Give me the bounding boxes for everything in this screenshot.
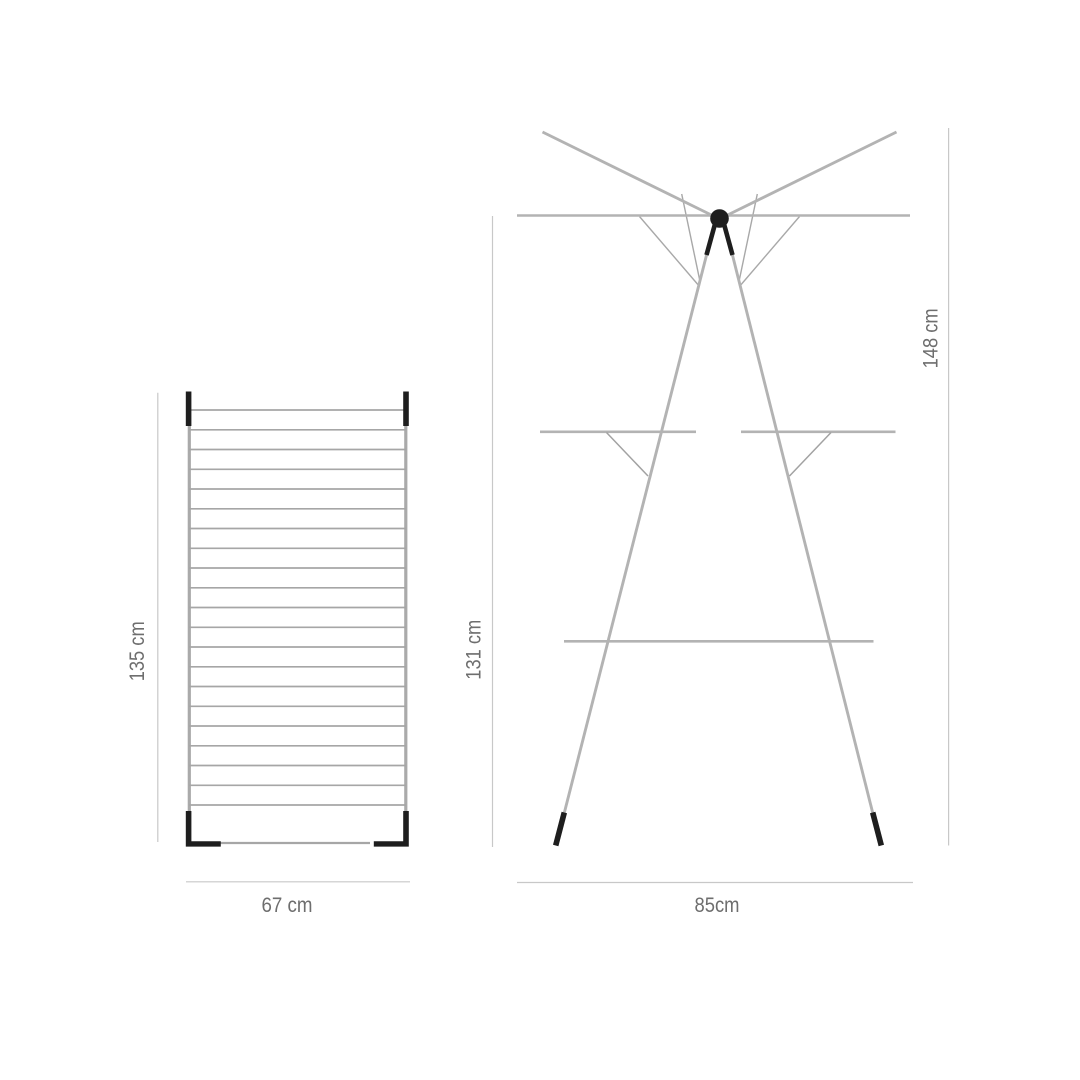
svg-text:67 cm: 67 cm [262,894,313,917]
svg-text:148 cm: 148 cm [919,308,942,368]
svg-text:85cm: 85cm [695,894,740,917]
svg-text:135 cm: 135 cm [126,621,149,681]
svg-text:131 cm: 131 cm [462,620,485,680]
